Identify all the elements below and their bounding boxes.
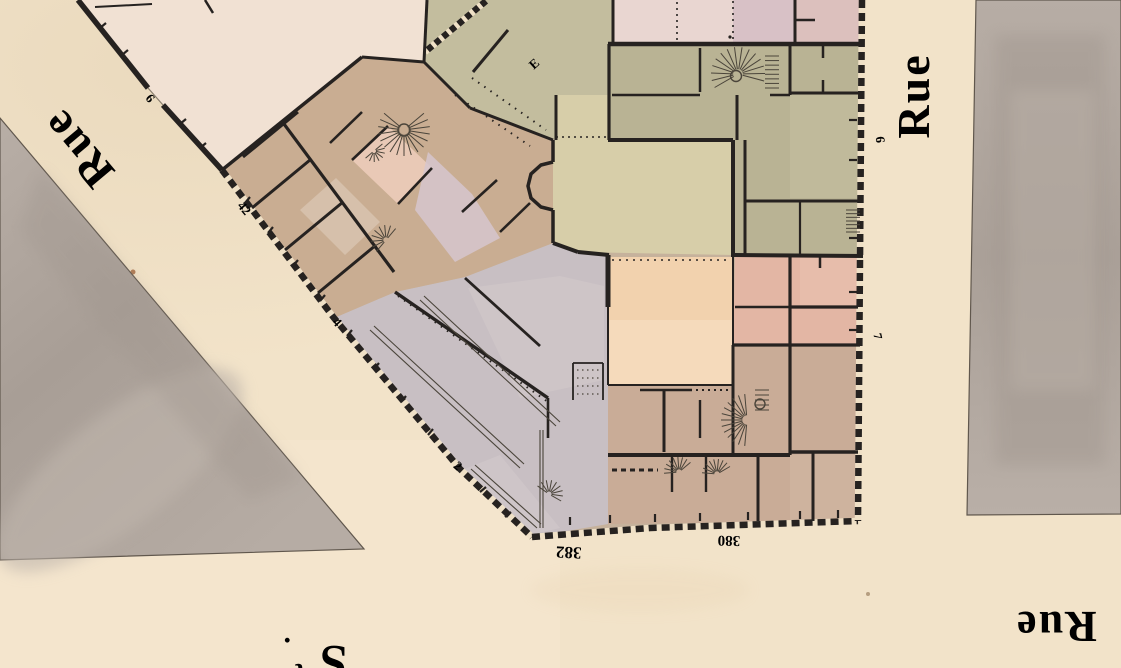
saint-dot: .	[281, 631, 291, 664]
street-label-rue-right: Rue	[888, 53, 939, 138]
street-label-rue-bottom-right: Rue	[1015, 602, 1097, 651]
parcel-number-382: 382	[555, 542, 581, 562]
saint-s: S	[318, 635, 347, 668]
saint-sup-t: t	[293, 657, 304, 668]
street-label-saint: S t .	[279, 631, 347, 668]
parcel-number-380: 380	[718, 532, 741, 548]
map-viewport: Rue Rue Rue S t . 6 42 4 2 6 7 382 380 E	[0, 0, 1121, 668]
historic-cadastral-plan: Rue Rue Rue S t . 6 42 4 2 6 7 382 380 E	[0, 0, 1121, 668]
